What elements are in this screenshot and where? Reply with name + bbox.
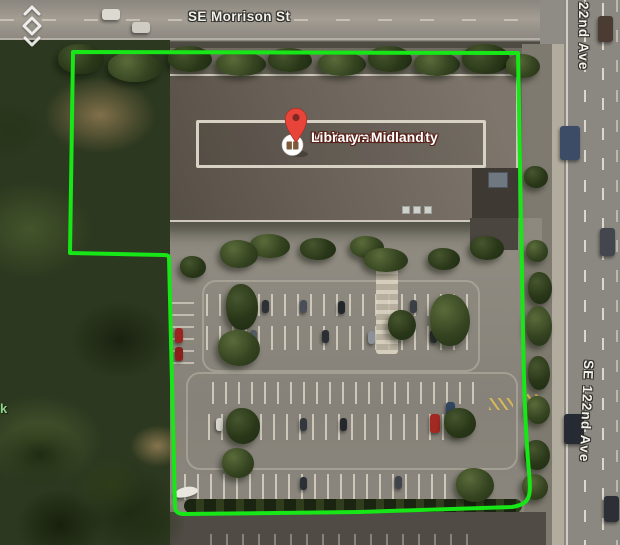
street-label-se-morrison-st: SE Morrison St [188,9,290,24]
two-way-arrows-diamond-icon [12,2,52,50]
street-label-122nd-ave-top: 22nd Ave [576,2,591,71]
poi-label-line2: Library - Midland [311,128,424,146]
park-label-fragment: k [0,401,7,416]
poi-marker[interactable] [282,108,308,157]
satellite-map-canvas[interactable]: Multnomah County Library - Midland SE Mo… [0,0,620,545]
library-book-icon [287,142,299,150]
map-overlay [0,0,620,545]
